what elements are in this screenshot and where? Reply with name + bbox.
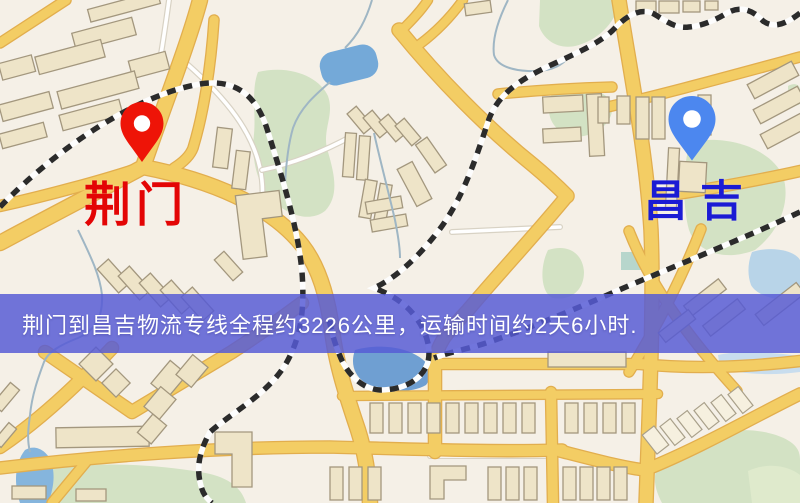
map-canvas[interactable] [0, 0, 800, 503]
blue-map-pin-icon [666, 94, 718, 172]
origin-city-label: 荆门 [84, 181, 188, 228]
route-info-banner: 荆门到昌吉物流专线全程约3226公里，运输时间约2天6小时. [0, 294, 800, 353]
destination-pin[interactable] [666, 94, 718, 172]
destination-city-label: 昌吉 [644, 181, 756, 224]
map-viewport[interactable]: 荆门 昌吉 荆门到昌吉物流专线全程约3226公里，运输时间约2天6小时. [0, 0, 800, 503]
pond [317, 41, 382, 88]
origin-pin[interactable] [118, 100, 166, 172]
route-info-text: 荆门到昌吉物流专线全程约3226公里，运输时间约2天6小时. [0, 308, 638, 340]
red-map-pin-icon [118, 100, 166, 172]
